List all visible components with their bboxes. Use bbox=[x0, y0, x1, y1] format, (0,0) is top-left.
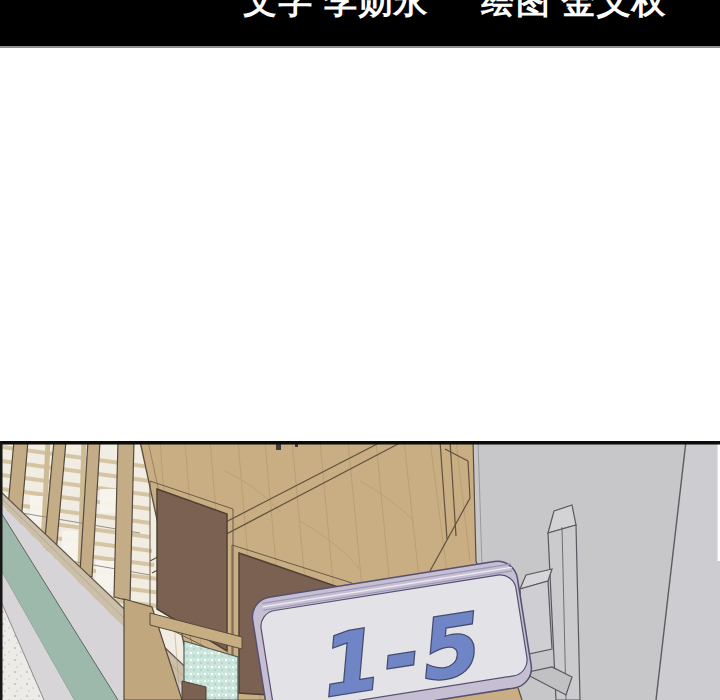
comic-page: 文字 李勋永 绘图 金义权 bbox=[0, 0, 720, 700]
credits-bar: 文字 李勋永 绘图 金义权 bbox=[0, 0, 720, 48]
page-whitespace bbox=[0, 48, 720, 441]
comic-panel: 1-5 bbox=[0, 441, 720, 700]
writer-credit: 文字 李勋永 bbox=[243, 0, 428, 18]
artist-credit: 绘图 金义权 bbox=[481, 0, 666, 18]
